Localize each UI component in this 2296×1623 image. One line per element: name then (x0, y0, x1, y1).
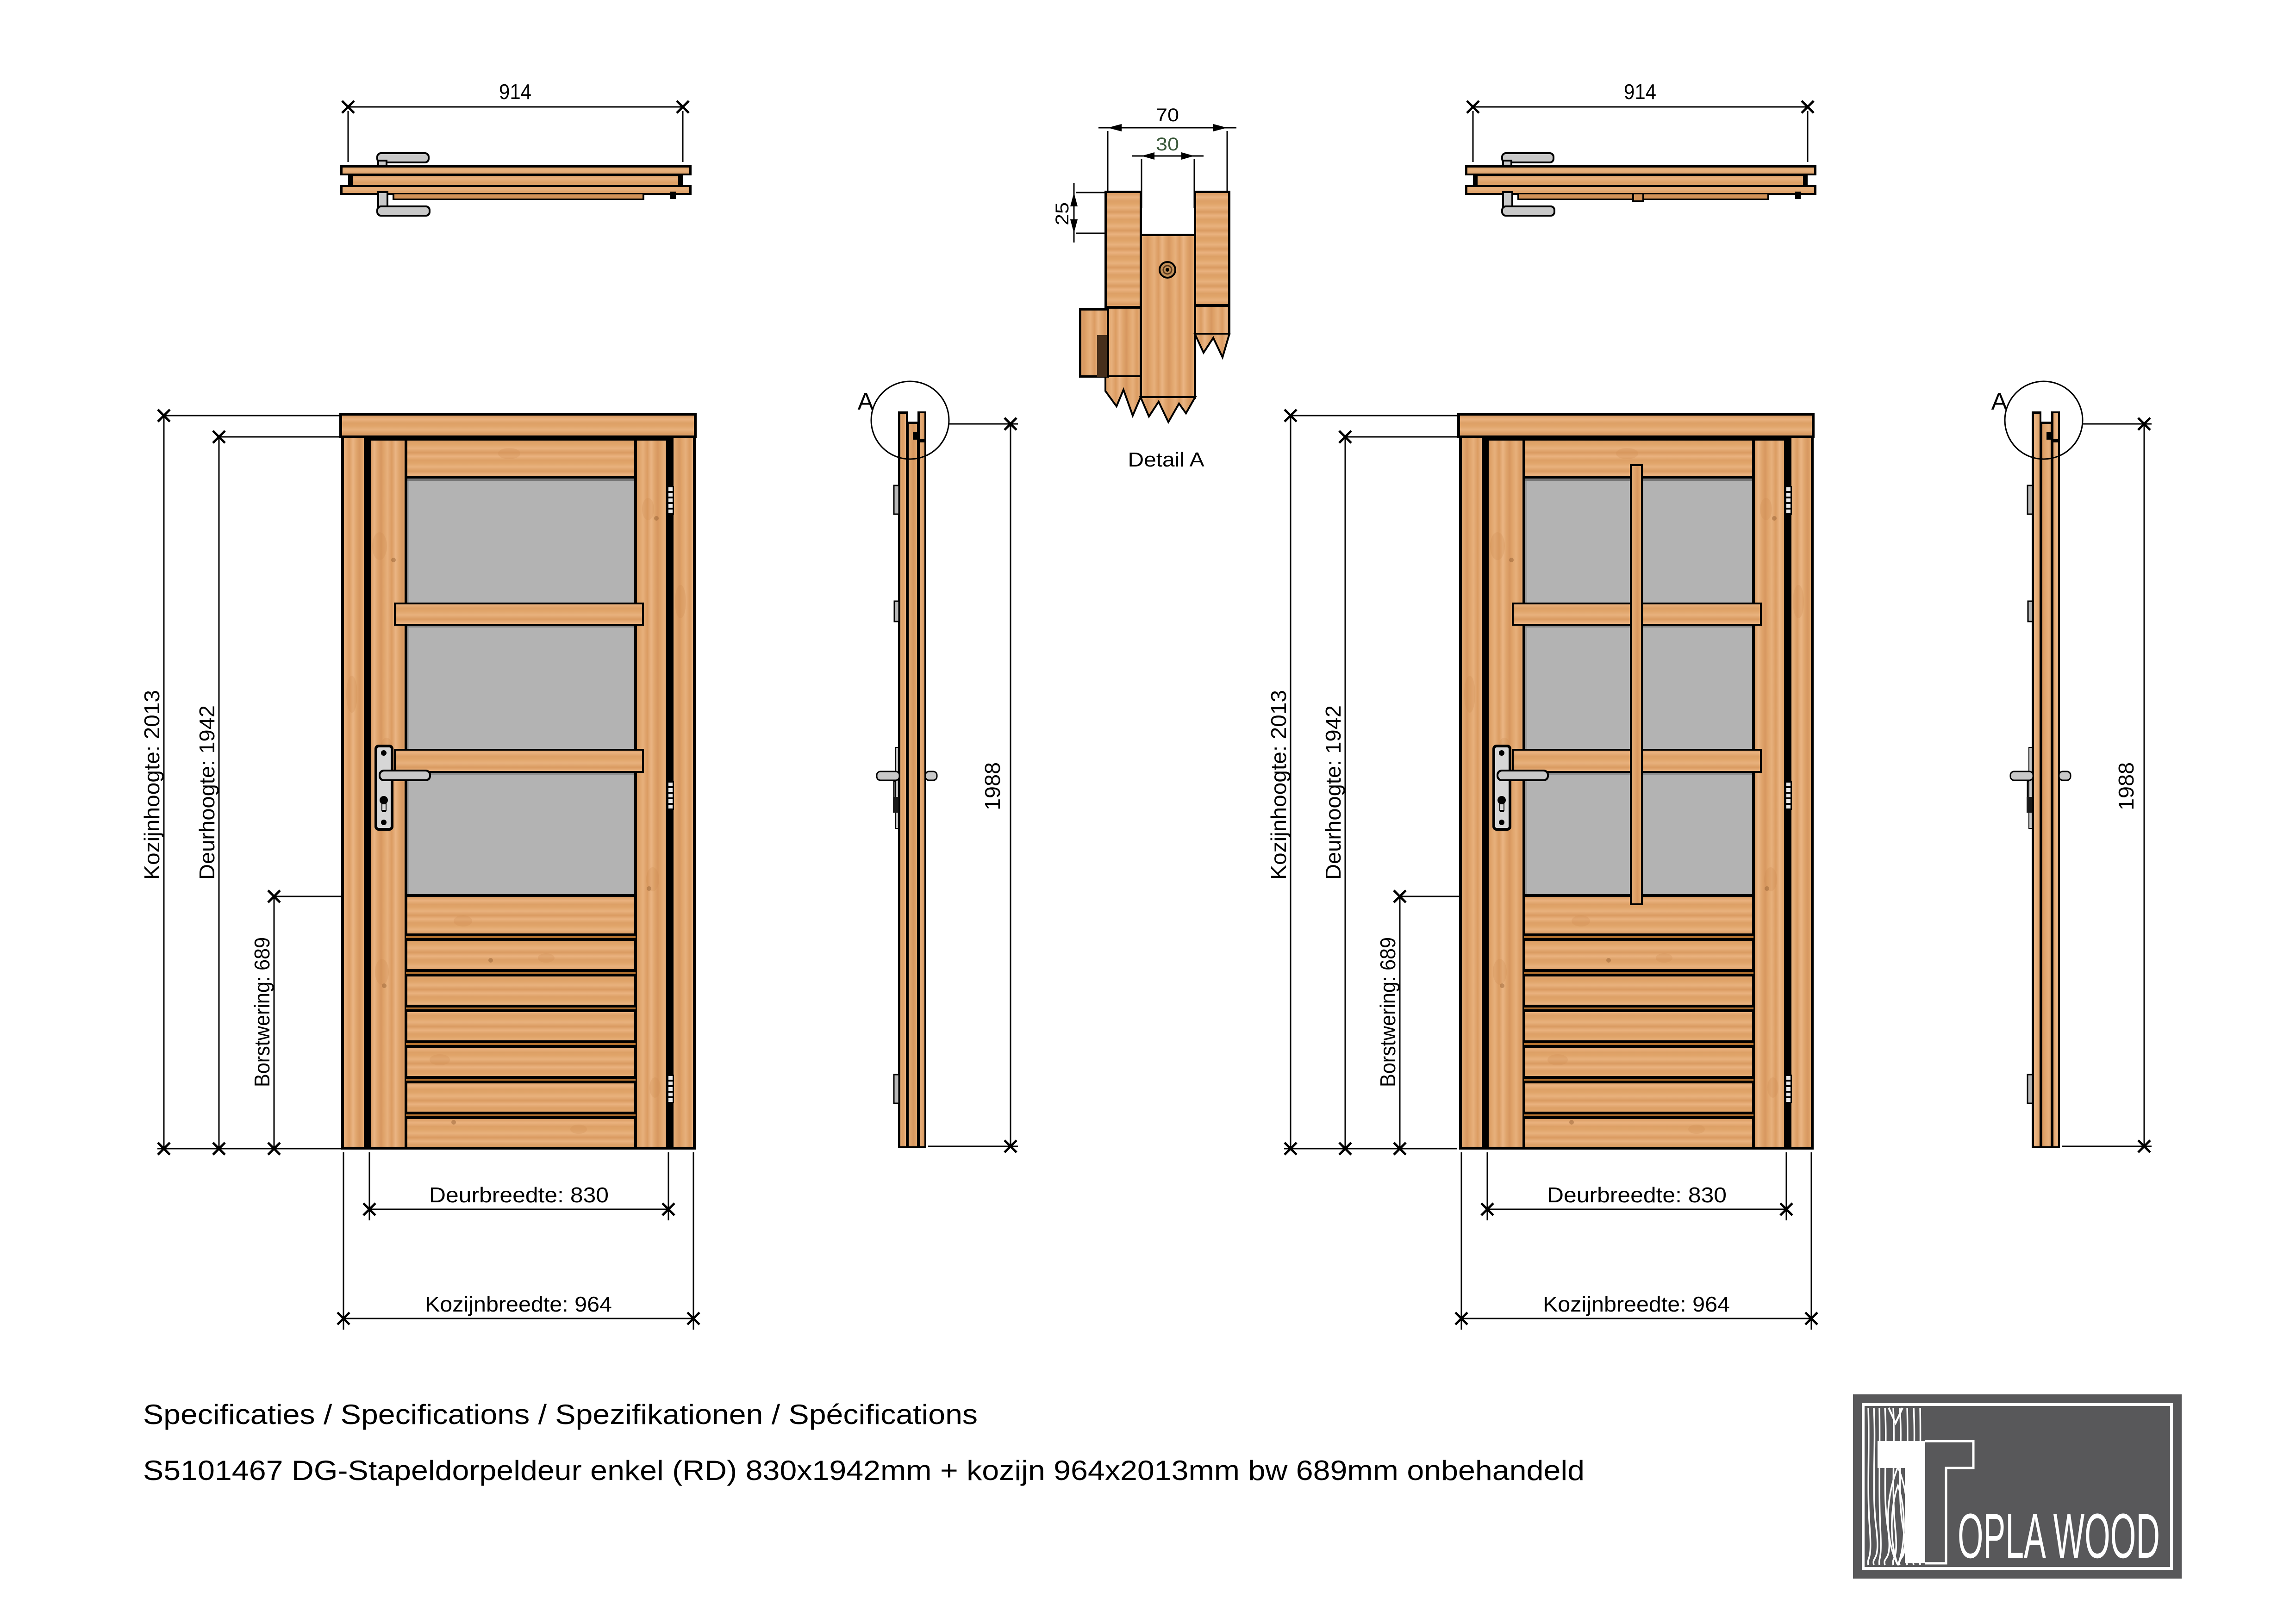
svg-text:914: 914 (1624, 80, 1656, 104)
svg-text:Borstwering: 689: Borstwering: 689 (1376, 937, 1400, 1087)
svg-text:1988: 1988 (2114, 762, 2138, 810)
svg-text:A: A (1991, 388, 2008, 415)
svg-text:A: A (858, 388, 874, 415)
svg-text:30: 30 (1156, 134, 1179, 155)
svg-text:70: 70 (1156, 105, 1179, 125)
svg-text:Specificaties / Specifications: Specificaties / Specifications / Spezifi… (143, 1399, 978, 1430)
svg-text:914: 914 (499, 80, 531, 104)
svg-text:Deurbreedte: 830: Deurbreedte: 830 (1547, 1183, 1727, 1207)
svg-text:Kozijnhoogte: 2013: Kozijnhoogte: 2013 (1267, 690, 1291, 880)
svg-text:25: 25 (1052, 202, 1073, 225)
svg-text:Deurhoogte: 1942: Deurhoogte: 1942 (195, 705, 219, 880)
svg-text:Deurbreedte: 830: Deurbreedte: 830 (429, 1183, 609, 1207)
svg-text:Kozijnbreedte: 964: Kozijnbreedte: 964 (425, 1292, 612, 1316)
svg-text:Kozijnhoogte: 2013: Kozijnhoogte: 2013 (140, 690, 164, 880)
svg-text:Kozijnbreedte: 964: Kozijnbreedte: 964 (1543, 1292, 1730, 1316)
svg-text:Borstwering: 689: Borstwering: 689 (250, 937, 274, 1087)
svg-text:Deurhoogte: 1942: Deurhoogte: 1942 (1321, 705, 1345, 880)
svg-text:OPLA WOOD: OPLA WOOD (1958, 1501, 2160, 1572)
svg-text:1988: 1988 (980, 762, 1004, 810)
svg-text:Detail A: Detail A (1128, 448, 1205, 471)
svg-text:S5101467 DG-Stapeldorpeldeur e: S5101467 DG-Stapeldorpeldeur enkel (RD) … (143, 1455, 1585, 1486)
